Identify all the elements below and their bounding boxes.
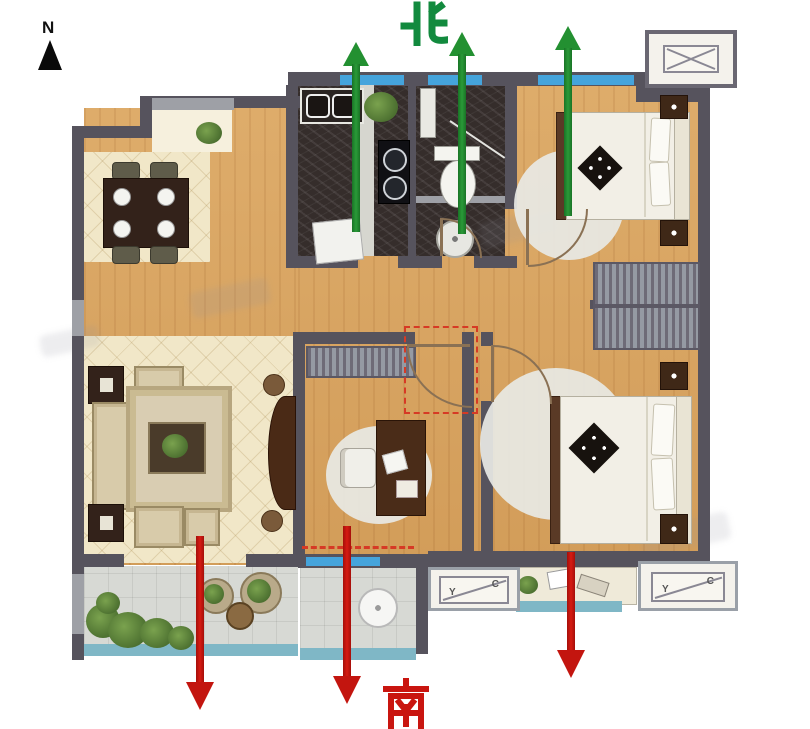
south-arrow-shaft [343,526,351,678]
pillow [649,118,671,163]
door-leaf [440,218,443,256]
laundry-rail [300,648,416,660]
armchair [134,506,184,548]
north-arrow-shaft [564,48,572,216]
dining-chair [112,246,140,264]
pillow [649,162,671,207]
south-arrow-shaft [196,536,204,684]
alcove-sill [152,98,234,110]
south-label: 南 [380,678,432,729]
burner [383,176,407,200]
compass-icon [38,40,62,70]
ac-glyph-left: Y [449,588,456,598]
south-label-glyph [380,678,432,729]
south-arrow-icon [557,650,585,678]
plant-icon [364,92,398,122]
dining-table [103,178,189,248]
nightstand [660,362,688,390]
side-table [88,504,124,542]
ac-glyph-right: C [492,580,499,590]
planter-plant [204,584,224,604]
north-arrow-icon [343,42,369,66]
washing-machine [358,588,398,628]
wall-left-light [72,574,84,634]
north-arrow-icon [555,26,581,50]
sink-bowl [306,94,330,118]
south-arrow-shaft [567,552,575,652]
tv-console [268,396,296,510]
side-table-top [98,376,115,394]
renovation-dashed-area [404,326,478,414]
pillow [651,457,676,510]
ac-platform-top [645,30,737,88]
plate [113,220,131,238]
wall-bedroom2-west-upper [481,332,493,346]
north-arrow-icon [449,32,475,56]
plate [157,188,175,206]
balcony-plants [168,626,194,650]
wall-kitchen-bath-south [398,256,442,268]
wall-study-north [293,332,415,344]
bed1-headboard [674,112,690,220]
north-label-glyph [398,0,448,46]
plate [113,188,131,206]
bed1-blanket-line [644,113,646,217]
renovation-dashed-line [302,546,414,549]
ac-symbol: Y C [439,576,509,604]
nightstand [660,95,688,119]
pillow [651,403,676,456]
balcony-plants [96,592,120,614]
wall-kitchen-left [286,85,298,268]
window-bedroom1 [538,75,634,85]
compass-n-label: N [42,18,54,38]
toilet-tank [434,146,480,161]
wall-laundry-right [416,554,428,654]
wall-balcony-right [246,554,300,567]
south-arrow-icon [333,676,361,704]
side-table [88,366,124,404]
floor-plan: Y C Y C N 北 [0,0,810,729]
ac-platform-bottom-right: Y C [638,561,738,611]
planter-plant [247,579,271,603]
wall-step [72,126,152,138]
decor-pot [261,510,283,532]
wall-bath-corner [505,256,517,268]
wardrobe-bedroom2 [593,306,700,350]
decor-pot [263,374,285,396]
door-leaf [491,345,494,402]
wardrobe-bedroom1 [593,262,700,306]
ac-glyph-right: C [707,577,714,587]
burner [383,148,407,172]
plant-icon [518,576,538,594]
plate [157,220,175,238]
ac-platform-bottom-left: Y C [428,567,520,611]
north-arrow-shaft [352,64,360,232]
nightstand [660,220,688,246]
door-leaf [526,209,529,265]
stool [226,602,254,630]
north-arrow-shaft [458,54,466,234]
side-table-top [98,514,115,532]
balcony-rail [84,644,298,656]
plant-icon [196,122,222,144]
north-label: 北 [398,0,448,46]
ac-glyph-left: Y [662,585,669,595]
bath-vanity [420,88,436,138]
ac-symbol [663,45,719,73]
nightstand [660,514,688,544]
desk-pad [396,480,418,498]
plant-icon [162,434,188,458]
window-bathroom [428,75,482,85]
south-arrow-icon [186,682,214,710]
bed2-blanket-line [646,397,648,541]
window-kitchen [340,75,404,85]
wall-balcony-left [72,554,124,567]
dining-chair [150,246,178,264]
desk-chair [340,448,376,488]
wall-left-light [72,300,84,336]
wardrobe-study [306,346,416,378]
ac-symbol: Y C [651,572,725,602]
